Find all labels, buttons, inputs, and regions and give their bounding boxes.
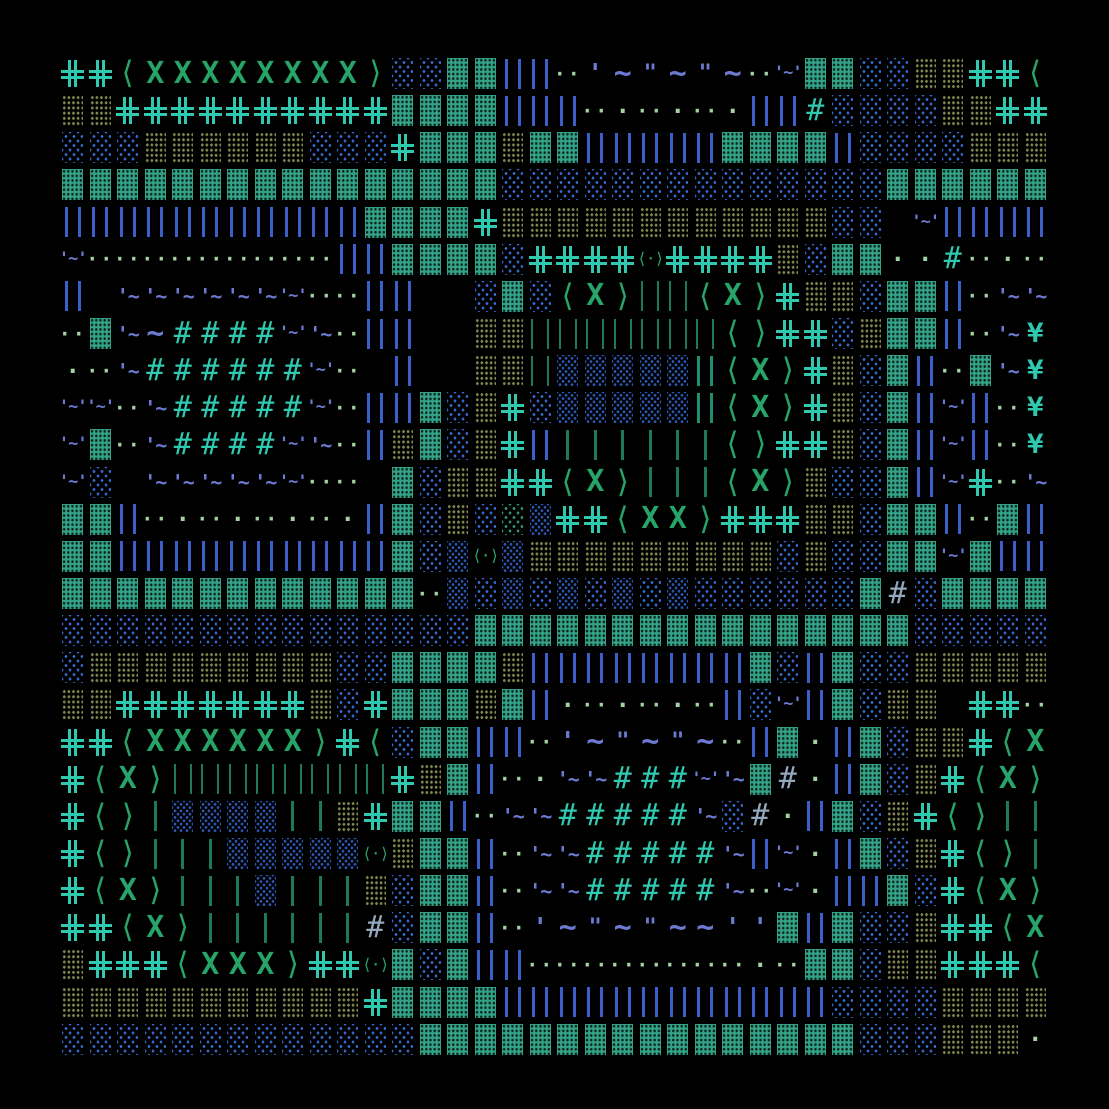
art-cell: ⟨ bbox=[114, 909, 142, 946]
art-cell bbox=[444, 129, 472, 166]
art-cell: ~ bbox=[637, 724, 665, 761]
art-cell: · bbox=[994, 241, 1022, 278]
art-cell: '~' bbox=[939, 426, 967, 463]
art-cell bbox=[857, 575, 885, 612]
art-cell: '~' bbox=[279, 464, 307, 501]
art-cell bbox=[967, 575, 995, 612]
art-cell bbox=[252, 798, 280, 835]
art-cell bbox=[884, 835, 912, 872]
art-cell bbox=[417, 909, 445, 946]
art-cell: X bbox=[1022, 909, 1050, 946]
art-cell bbox=[279, 166, 307, 203]
art-cell bbox=[912, 389, 940, 426]
art-cell: '~' bbox=[774, 872, 802, 909]
art-cell bbox=[829, 575, 857, 612]
art-cell: ·· bbox=[252, 241, 280, 278]
art-cell: " bbox=[582, 909, 610, 946]
art-cell bbox=[554, 538, 582, 575]
art-cell bbox=[362, 464, 390, 501]
art-cell: '~ bbox=[719, 761, 747, 798]
art-cell bbox=[417, 315, 445, 352]
art-cell: ·· bbox=[279, 241, 307, 278]
art-cell bbox=[884, 946, 912, 983]
art-cell bbox=[912, 649, 940, 686]
art-cell bbox=[444, 724, 472, 761]
art-cell: X bbox=[224, 946, 252, 983]
art-cell bbox=[857, 946, 885, 983]
art-cell bbox=[774, 575, 802, 612]
art-cell bbox=[664, 538, 692, 575]
art-cell bbox=[252, 612, 280, 649]
art-cell bbox=[637, 352, 665, 389]
art-cell bbox=[637, 575, 665, 612]
art-cell bbox=[197, 129, 225, 166]
art-cell bbox=[719, 1021, 747, 1058]
art-cell: · bbox=[609, 92, 637, 129]
art-cell: '~ bbox=[554, 761, 582, 798]
art-cell: # bbox=[197, 315, 225, 352]
art-cell: X bbox=[197, 724, 225, 761]
art-cell: ·· bbox=[967, 278, 995, 315]
art-cell bbox=[939, 761, 967, 798]
art-cell: '~' bbox=[87, 389, 115, 426]
art-cell bbox=[224, 872, 252, 909]
art-cell: · bbox=[334, 501, 362, 538]
art-cell bbox=[912, 1021, 940, 1058]
art-cell bbox=[939, 575, 967, 612]
art-cell bbox=[912, 464, 940, 501]
art-cell bbox=[967, 129, 995, 166]
art-cell bbox=[334, 575, 362, 612]
art-cell bbox=[279, 835, 307, 872]
art-cell bbox=[169, 984, 197, 1021]
art-cell bbox=[912, 872, 940, 909]
art-cell bbox=[444, 649, 472, 686]
art-cell bbox=[967, 538, 995, 575]
art-cell bbox=[884, 686, 912, 723]
art-cell bbox=[169, 575, 197, 612]
art-cell bbox=[197, 575, 225, 612]
art-cell bbox=[279, 204, 307, 241]
art-cell: ' bbox=[527, 909, 555, 946]
art-cell: X bbox=[114, 872, 142, 909]
art-cell bbox=[142, 129, 170, 166]
art-cell: # bbox=[279, 352, 307, 389]
art-cell bbox=[1022, 129, 1050, 166]
art-cell bbox=[142, 538, 170, 575]
art-cell bbox=[362, 538, 390, 575]
art-cell bbox=[802, 204, 830, 241]
art-cell bbox=[59, 575, 87, 612]
art-cell bbox=[747, 538, 775, 575]
art-cell bbox=[857, 835, 885, 872]
art-cell bbox=[527, 1021, 555, 1058]
art-cell bbox=[802, 984, 830, 1021]
art-cell bbox=[87, 464, 115, 501]
art-cell bbox=[114, 984, 142, 1021]
art-cell: # bbox=[692, 835, 720, 872]
art-cell bbox=[829, 686, 857, 723]
art-cell bbox=[774, 1021, 802, 1058]
art-cell bbox=[142, 575, 170, 612]
art-cell bbox=[829, 1021, 857, 1058]
art-cell: ⟨ bbox=[87, 761, 115, 798]
art-cell bbox=[362, 1021, 390, 1058]
art-cell: ·· bbox=[719, 724, 747, 761]
art-cell bbox=[307, 649, 335, 686]
art-cell bbox=[114, 204, 142, 241]
art-cell bbox=[884, 538, 912, 575]
art-cell bbox=[554, 92, 582, 129]
art-cell bbox=[472, 204, 500, 241]
art-cell bbox=[224, 686, 252, 723]
art-cell bbox=[692, 204, 720, 241]
art-cell bbox=[499, 946, 527, 983]
art-cell: ⟨ bbox=[87, 798, 115, 835]
art-cell bbox=[197, 984, 225, 1021]
art-cell bbox=[59, 835, 87, 872]
art-cell bbox=[334, 909, 362, 946]
art-cell: ·· bbox=[637, 686, 665, 723]
art-cell bbox=[472, 166, 500, 203]
art-cell bbox=[609, 241, 637, 278]
art-cell bbox=[829, 761, 857, 798]
art-cell bbox=[774, 724, 802, 761]
art-cell bbox=[912, 278, 940, 315]
art-cell: X bbox=[747, 352, 775, 389]
art-cell bbox=[417, 686, 445, 723]
art-cell bbox=[362, 129, 390, 166]
art-cell bbox=[829, 92, 857, 129]
art-cell: ⟨ bbox=[1022, 946, 1050, 983]
art-cell: · bbox=[802, 761, 830, 798]
art-cell bbox=[1022, 166, 1050, 203]
art-cell bbox=[444, 352, 472, 389]
art-cell bbox=[417, 166, 445, 203]
art-cell bbox=[609, 575, 637, 612]
art-cell bbox=[389, 575, 417, 612]
art-cell bbox=[417, 946, 445, 983]
art-cell bbox=[499, 55, 527, 92]
art-cell: '~' bbox=[939, 538, 967, 575]
art-cell bbox=[362, 92, 390, 129]
art-cell: '~ bbox=[142, 389, 170, 426]
art-cell: ·· bbox=[417, 575, 445, 612]
art-cell bbox=[829, 241, 857, 278]
art-cell bbox=[362, 872, 390, 909]
art-cell bbox=[224, 798, 252, 835]
art-cell bbox=[857, 649, 885, 686]
art-cell bbox=[747, 501, 775, 538]
art-cell bbox=[389, 426, 417, 463]
art-cell bbox=[637, 649, 665, 686]
art-cell bbox=[664, 984, 692, 1021]
art-cell: " bbox=[692, 55, 720, 92]
art-cell bbox=[87, 204, 115, 241]
art-cell bbox=[197, 909, 225, 946]
art-cell bbox=[1022, 649, 1050, 686]
art-cell bbox=[444, 686, 472, 723]
art-cell bbox=[472, 352, 500, 389]
art-cell bbox=[692, 538, 720, 575]
art-cell bbox=[692, 1021, 720, 1058]
art-cell: ~ bbox=[692, 724, 720, 761]
art-cell: ·· bbox=[114, 426, 142, 463]
art-cell bbox=[802, 612, 830, 649]
art-cell: '~' bbox=[59, 464, 87, 501]
art-cell bbox=[224, 1021, 252, 1058]
art-cell bbox=[554, 166, 582, 203]
art-cell bbox=[857, 129, 885, 166]
art-cell bbox=[142, 166, 170, 203]
art-cell bbox=[472, 501, 500, 538]
art-cell: '~' bbox=[59, 241, 87, 278]
art-cell bbox=[857, 798, 885, 835]
art-cell bbox=[362, 204, 390, 241]
art-cell bbox=[582, 166, 610, 203]
art-cell: ⟨ bbox=[362, 724, 390, 761]
art-cell bbox=[664, 166, 692, 203]
art-cell: · bbox=[609, 686, 637, 723]
art-cell: '~ bbox=[142, 278, 170, 315]
art-cell: ·· bbox=[1022, 686, 1050, 723]
art-cell bbox=[334, 984, 362, 1021]
art-cell bbox=[307, 946, 335, 983]
art-cell: ⟩ bbox=[1022, 761, 1050, 798]
art-cell bbox=[939, 946, 967, 983]
art-cell bbox=[197, 92, 225, 129]
art-cell bbox=[884, 464, 912, 501]
art-cell: ·· bbox=[719, 946, 747, 983]
art-cell bbox=[747, 724, 775, 761]
art-cell bbox=[939, 835, 967, 872]
art-cell: ⟩ bbox=[967, 798, 995, 835]
art-cell: ·· bbox=[664, 946, 692, 983]
art-cell bbox=[307, 612, 335, 649]
art-cell bbox=[307, 204, 335, 241]
art-cell bbox=[829, 798, 857, 835]
art-cell bbox=[169, 92, 197, 129]
art-cell: # bbox=[224, 352, 252, 389]
art-cell bbox=[224, 575, 252, 612]
art-cell bbox=[527, 166, 555, 203]
art-cell: ⟨·⟩ bbox=[472, 538, 500, 575]
art-cell bbox=[224, 984, 252, 1021]
art-cell: '~' bbox=[307, 352, 335, 389]
art-cell: '~' bbox=[774, 55, 802, 92]
art-cell bbox=[719, 612, 747, 649]
art-cell bbox=[362, 575, 390, 612]
art-cell bbox=[472, 946, 500, 983]
art-cell: # bbox=[169, 426, 197, 463]
art-cell: ⟨ bbox=[719, 352, 747, 389]
art-cell bbox=[967, 909, 995, 946]
art-cell: '~ bbox=[142, 464, 170, 501]
art-cell: ⟩ bbox=[692, 501, 720, 538]
art-cell: ·· bbox=[334, 426, 362, 463]
art-cell: ⟩ bbox=[114, 835, 142, 872]
art-cell bbox=[527, 538, 555, 575]
art-cell bbox=[444, 389, 472, 426]
art-cell bbox=[829, 724, 857, 761]
art-cell bbox=[857, 761, 885, 798]
art-cell bbox=[252, 984, 280, 1021]
art-cell bbox=[279, 538, 307, 575]
art-cell bbox=[994, 575, 1022, 612]
art-cell bbox=[939, 204, 967, 241]
art-cell bbox=[967, 426, 995, 463]
art-cell bbox=[142, 649, 170, 686]
art-cell bbox=[884, 129, 912, 166]
art-cell bbox=[142, 798, 170, 835]
art-cell bbox=[417, 798, 445, 835]
art-cell bbox=[664, 426, 692, 463]
art-cell bbox=[582, 649, 610, 686]
art-cell bbox=[994, 612, 1022, 649]
art-cell bbox=[389, 241, 417, 278]
art-cell bbox=[114, 538, 142, 575]
art-cell bbox=[994, 686, 1022, 723]
art-cell bbox=[609, 984, 637, 1021]
art-cell: # bbox=[169, 315, 197, 352]
art-cell bbox=[142, 92, 170, 129]
art-cell: ·· bbox=[692, 946, 720, 983]
art-cell bbox=[747, 241, 775, 278]
art-cell: ~ bbox=[664, 909, 692, 946]
art-cell: '~ bbox=[224, 464, 252, 501]
art-cell bbox=[197, 686, 225, 723]
art-cell: ·· bbox=[939, 352, 967, 389]
art-cell bbox=[912, 538, 940, 575]
art-cell bbox=[472, 686, 500, 723]
art-cell: ⟩ bbox=[609, 278, 637, 315]
art-cell bbox=[197, 835, 225, 872]
art-cell: X bbox=[994, 761, 1022, 798]
art-cell bbox=[417, 241, 445, 278]
art-cell bbox=[582, 426, 610, 463]
art-cell bbox=[334, 724, 362, 761]
art-cell: ⟨ bbox=[554, 278, 582, 315]
art-cell bbox=[802, 798, 830, 835]
art-cell bbox=[59, 984, 87, 1021]
art-cell bbox=[389, 835, 417, 872]
art-cell bbox=[87, 612, 115, 649]
art-cell: · bbox=[664, 686, 692, 723]
art-cell bbox=[114, 575, 142, 612]
art-cell bbox=[389, 798, 417, 835]
art-cell bbox=[334, 204, 362, 241]
art-cell bbox=[197, 538, 225, 575]
art-cell bbox=[197, 798, 225, 835]
art-cell bbox=[307, 761, 335, 798]
art-cell bbox=[664, 649, 692, 686]
art-cell: ⟨ bbox=[114, 55, 142, 92]
art-cell: '~' bbox=[59, 426, 87, 463]
art-cell: '~ bbox=[114, 278, 142, 315]
art-cell bbox=[637, 1021, 665, 1058]
art-cell bbox=[857, 426, 885, 463]
art-cell: ·· bbox=[87, 241, 115, 278]
art-cell bbox=[389, 55, 417, 92]
art-cell bbox=[224, 166, 252, 203]
art-cell bbox=[389, 724, 417, 761]
art-cell: '~' bbox=[774, 686, 802, 723]
art-cell: · bbox=[774, 798, 802, 835]
art-cell: '~ bbox=[554, 872, 582, 909]
art-cell bbox=[389, 984, 417, 1021]
art-cell: · bbox=[279, 501, 307, 538]
art-cell bbox=[389, 204, 417, 241]
art-cell bbox=[499, 129, 527, 166]
art-cell: ·· bbox=[142, 241, 170, 278]
art-cell bbox=[169, 166, 197, 203]
art-cell bbox=[912, 984, 940, 1021]
art-cell bbox=[774, 241, 802, 278]
art-cell bbox=[802, 686, 830, 723]
art-cell bbox=[884, 166, 912, 203]
art-cell bbox=[279, 129, 307, 166]
art-cell bbox=[224, 909, 252, 946]
art-cell bbox=[747, 92, 775, 129]
art-cell bbox=[692, 389, 720, 426]
art-cell bbox=[279, 798, 307, 835]
art-cell bbox=[472, 724, 500, 761]
art-cell bbox=[857, 724, 885, 761]
art-cell bbox=[609, 426, 637, 463]
art-cell bbox=[747, 129, 775, 166]
art-cell bbox=[59, 92, 87, 129]
art-cell: · bbox=[169, 501, 197, 538]
art-cell bbox=[307, 575, 335, 612]
art-cell: · bbox=[802, 872, 830, 909]
art-cell: ~ bbox=[609, 55, 637, 92]
art-cell bbox=[939, 129, 967, 166]
art-cell bbox=[554, 426, 582, 463]
art-cell bbox=[802, 501, 830, 538]
art-cell bbox=[169, 835, 197, 872]
art-cell bbox=[169, 649, 197, 686]
art-cell: # bbox=[637, 872, 665, 909]
art-cell: ⟨ bbox=[939, 798, 967, 835]
art-cell bbox=[967, 686, 995, 723]
art-cell bbox=[912, 946, 940, 983]
art-cell bbox=[417, 464, 445, 501]
art-cell: ' bbox=[582, 55, 610, 92]
art-cell: ⟨ bbox=[114, 724, 142, 761]
art-cell: ⟨ bbox=[719, 315, 747, 352]
art-cell: X bbox=[197, 55, 225, 92]
art-cell: ·· bbox=[527, 946, 555, 983]
art-cell bbox=[939, 686, 967, 723]
art-cell bbox=[59, 872, 87, 909]
art-cell bbox=[252, 761, 280, 798]
art-cell bbox=[857, 686, 885, 723]
art-cell bbox=[252, 909, 280, 946]
art-cell bbox=[857, 1021, 885, 1058]
art-cell: # bbox=[582, 835, 610, 872]
art-cell bbox=[499, 241, 527, 278]
art-cell bbox=[334, 538, 362, 575]
art-cell bbox=[884, 649, 912, 686]
art-cell bbox=[252, 872, 280, 909]
art-cell bbox=[719, 798, 747, 835]
art-cell bbox=[609, 352, 637, 389]
art-cell bbox=[444, 984, 472, 1021]
art-cell bbox=[857, 92, 885, 129]
art-cell bbox=[362, 612, 390, 649]
art-cell bbox=[637, 315, 665, 352]
art-cell bbox=[499, 686, 527, 723]
